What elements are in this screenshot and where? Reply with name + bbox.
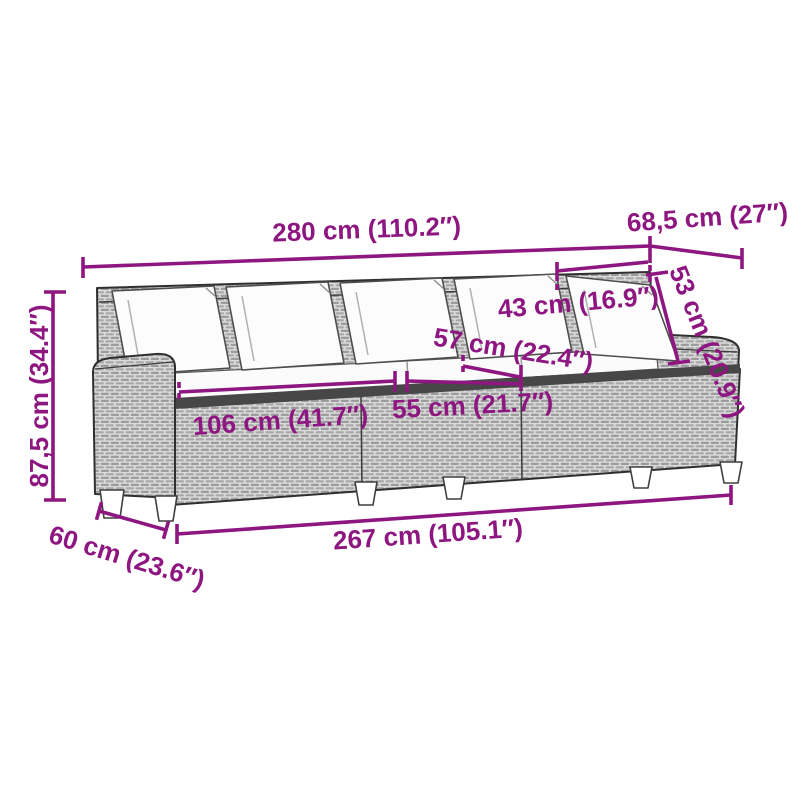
sofa-leg [630, 467, 652, 488]
dim-base-depth-label: 60 cm (23.6″) [45, 519, 208, 595]
sofa-leg [355, 482, 377, 505]
sofa-leg [155, 496, 177, 521]
sofa-leg [720, 462, 742, 483]
product-dimension-diagram: 280 cm (110.2″) 68,5 cm (27″) 53 cm (20.… [0, 0, 800, 800]
dim-overall-height: 87,5 cm (34.4″) [24, 292, 66, 500]
dim-overall-height-label: 87,5 cm (34.4″) [24, 304, 54, 487]
back-cushion [226, 282, 344, 370]
dim-overall-width-label: 280 cm (110.2″) [272, 210, 462, 247]
sofa-dimension-drawing: 280 cm (110.2″) 68,5 cm (27″) 53 cm (20.… [0, 0, 800, 800]
dim-base-width-label: 267 cm (105.1″) [332, 512, 524, 555]
left-armrest [93, 354, 175, 498]
dim-overall-depth-label: 68,5 cm (27″) [626, 196, 789, 237]
dim-base-depth: 60 cm (23.6″) [45, 502, 208, 595]
sofa-leg [443, 477, 465, 499]
